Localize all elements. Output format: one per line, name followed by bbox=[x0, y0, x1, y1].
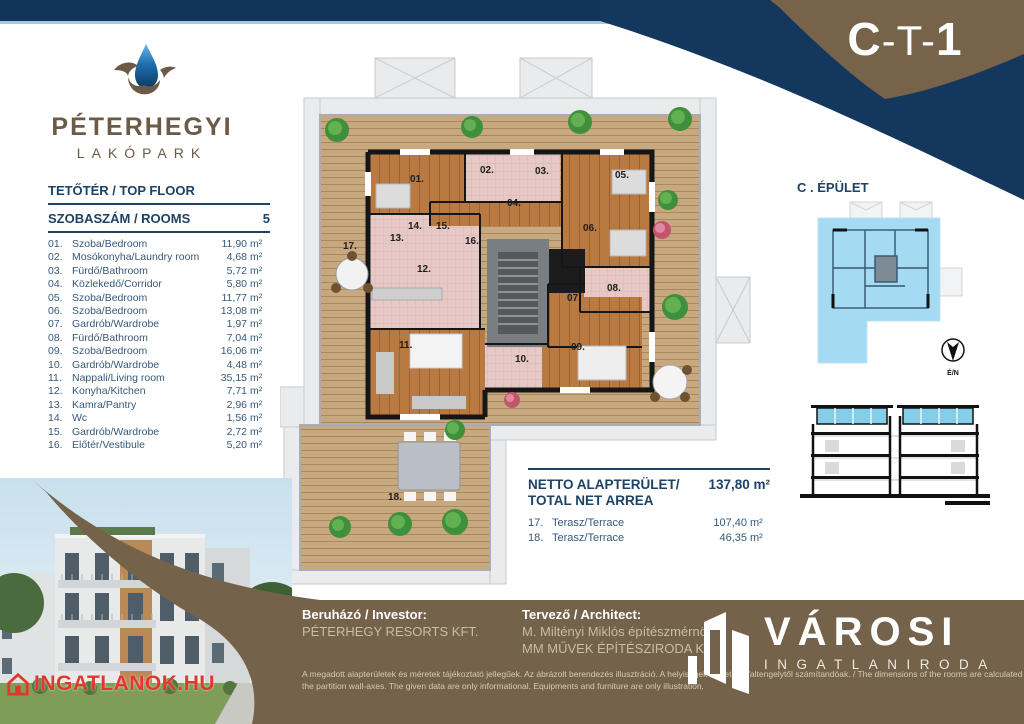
table-cell: 14. bbox=[48, 412, 72, 425]
table-row: 07.Gardrób/Wardrobe1,97m² bbox=[48, 318, 270, 331]
section-topfloor-right bbox=[903, 408, 973, 424]
table-row: 05.Szoba/Bedroom11,77m² bbox=[48, 292, 270, 305]
table-cell: 46,35 bbox=[701, 531, 747, 546]
table-row: 17.Terasz/Terrace107,40m² bbox=[528, 516, 770, 531]
table-row: 16.Előtér/Vestibule5,20m² bbox=[48, 439, 270, 452]
table-cell: Szoba/Bedroom bbox=[72, 238, 201, 251]
building-section bbox=[795, 396, 995, 512]
table-cell: 1,56 bbox=[201, 412, 247, 425]
table-row: 18.Terasz/Terrace46,35m² bbox=[528, 531, 770, 546]
table-cell: 10. bbox=[48, 359, 72, 372]
table-cell: m² bbox=[247, 426, 270, 439]
terrace-rows: 17.Terasz/Terrace107,40m²18.Terasz/Terra… bbox=[528, 516, 770, 545]
table-row: 09.Szoba/Bedroom16,06m² bbox=[48, 345, 270, 358]
investor-label: Beruházó / Investor: bbox=[302, 606, 479, 623]
city-buildings-icon bbox=[688, 610, 750, 696]
table-cell: 4,68 bbox=[201, 251, 247, 264]
logo-title: PÉTERHEGYI bbox=[42, 113, 242, 142]
unit-code-t: -T- bbox=[882, 17, 936, 64]
table-cell: 11,90 bbox=[201, 238, 247, 251]
unit-code: C-T-1 bbox=[820, 12, 990, 66]
table-cell: 08. bbox=[48, 332, 72, 345]
table-cell: 11,77 bbox=[201, 292, 247, 305]
table-cell: m² bbox=[247, 305, 270, 318]
table-cell: Terasz/Terrace bbox=[552, 531, 701, 546]
table-cell: 12. bbox=[48, 385, 72, 398]
developer-logo: PÉTERHEGYI LAKÓPARK bbox=[42, 42, 242, 161]
table-cell: Kamra/Pantry bbox=[72, 399, 201, 412]
table-cell: 06. bbox=[48, 305, 72, 318]
table-cell: m² bbox=[247, 345, 270, 358]
net-area-value: 137,80 m² bbox=[708, 477, 770, 509]
room-number-label: 02. bbox=[480, 165, 494, 176]
table-cell: Wc bbox=[72, 412, 201, 425]
table-cell: Közlekedő/Corridor bbox=[72, 278, 201, 291]
room-number-label: 14. bbox=[408, 221, 422, 232]
room-number-label: 18. bbox=[388, 492, 402, 503]
investor-block: Beruházó / Investor: PÉTERHEGY RESORTS K… bbox=[302, 606, 479, 640]
table-cell: Terasz/Terrace bbox=[552, 516, 701, 531]
rooms-header-label: SZOBASZÁM / ROOMS bbox=[48, 211, 190, 226]
table-cell: Szoba/Bedroom bbox=[72, 292, 201, 305]
table-row: 06.Szoba/Bedroom13,08m² bbox=[48, 305, 270, 318]
table-row: 11.Nappali/Living room35,15m² bbox=[48, 372, 270, 385]
room-number-label: 11. bbox=[399, 340, 413, 351]
table-cell: 11. bbox=[48, 372, 72, 385]
building-title: C . ÉPÜLET bbox=[797, 180, 869, 195]
table-cell: 13,08 bbox=[201, 305, 247, 318]
table-cell: 01. bbox=[48, 238, 72, 251]
table-cell: 16. bbox=[48, 439, 72, 452]
agency-logo: VÁROSI INGATLANIRODA bbox=[688, 610, 997, 696]
table-cell: 5,80 bbox=[201, 278, 247, 291]
room-number-label: 12. bbox=[417, 264, 431, 275]
room-number-label: 06. bbox=[583, 223, 597, 234]
table-row: 03.Fürdő/Bathroom5,72m² bbox=[48, 265, 270, 278]
disclaimer: A megadott alapterületek és méretek tájé… bbox=[302, 669, 1024, 692]
table-cell: m² bbox=[247, 292, 270, 305]
table-cell: m² bbox=[247, 332, 270, 345]
table-cell: 02. bbox=[48, 251, 72, 264]
table-cell: m² bbox=[247, 318, 270, 331]
building-key-map: É/N bbox=[795, 198, 1005, 394]
net-area-label-1: NETTO ALAPTERÜLET/ bbox=[528, 477, 708, 493]
table-cell: 04. bbox=[48, 278, 72, 291]
table-cell: m² bbox=[247, 412, 270, 425]
room-number-label: 09. bbox=[571, 342, 585, 353]
table-cell: m² bbox=[747, 516, 770, 531]
table-row: 04.Közlekedő/Corridor5,80m² bbox=[48, 278, 270, 291]
section-topfloor-left bbox=[817, 408, 887, 424]
architect-block: Tervező / Architect: M. Miltényi Miklós … bbox=[522, 606, 722, 657]
room-number-label: 01. bbox=[410, 174, 424, 185]
table-cell: 17. bbox=[528, 516, 552, 531]
table-row: 14.Wc1,56m² bbox=[48, 412, 270, 425]
table-cell: 07. bbox=[48, 318, 72, 331]
table-row: 10.Gardrób/Wardrobe4,48m² bbox=[48, 359, 270, 372]
table-cell: Fürdő/Bathroom bbox=[72, 332, 201, 345]
table-row: 08.Fürdő/Bathroom7,04m² bbox=[48, 332, 270, 345]
table-cell: 09. bbox=[48, 345, 72, 358]
watermark-text: INGATLANOK.HU bbox=[34, 672, 215, 696]
room-number-label: 03. bbox=[535, 166, 549, 177]
room-table: TETŐTÉR / TOP FLOOR SZOBASZÁM / ROOMS 5 … bbox=[48, 183, 270, 453]
disclaimer-line-2: the partition wall-axes. The given data … bbox=[302, 681, 1024, 693]
watermark: INGATLANOK.HU bbox=[6, 672, 215, 696]
room-number-label: 05. bbox=[615, 170, 629, 181]
net-area-label-2: TOTAL NET ARREA bbox=[528, 493, 708, 509]
table-cell: 7,04 bbox=[201, 332, 247, 345]
table-cell: 4,48 bbox=[201, 359, 247, 372]
table-row: 13.Kamra/Pantry2,96m² bbox=[48, 399, 270, 412]
table-cell: m² bbox=[247, 359, 270, 372]
table-cell: Fürdő/Bathroom bbox=[72, 265, 201, 278]
room-number-label: 07. bbox=[567, 293, 581, 304]
table-cell: 2,96 bbox=[201, 399, 247, 412]
brochure-page: C-T-1 PÉTERHEGYI LAKÓPARK TETŐTÉR / TOP … bbox=[0, 0, 1024, 724]
room-table-header: SZOBASZÁM / ROOMS 5 bbox=[48, 205, 270, 233]
room-number-label: 10. bbox=[515, 354, 529, 365]
table-cell: m² bbox=[247, 278, 270, 291]
table-cell: Szoba/Bedroom bbox=[72, 305, 201, 318]
room-number-label: 17. bbox=[343, 241, 357, 252]
table-cell: 05. bbox=[48, 292, 72, 305]
table-cell: 7,71 bbox=[201, 385, 247, 398]
table-cell: 13. bbox=[48, 399, 72, 412]
stairwell bbox=[498, 252, 538, 334]
room-table-title: TETŐTÉR / TOP FLOOR bbox=[48, 183, 270, 205]
top-accent-line bbox=[0, 21, 700, 24]
room-number-label: 16. bbox=[465, 236, 479, 247]
logo-subtitle: LAKÓPARK bbox=[42, 145, 242, 161]
table-cell: m² bbox=[247, 439, 270, 452]
table-row: 12.Konyha/Kitchen7,71m² bbox=[48, 385, 270, 398]
room-number-label: 04. bbox=[507, 198, 521, 209]
table-cell: 18. bbox=[528, 531, 552, 546]
table-cell: Szoba/Bedroom bbox=[72, 345, 201, 358]
table-cell: 35,15 bbox=[201, 372, 247, 385]
architect-label: Tervező / Architect: bbox=[522, 606, 722, 623]
rooms-count: 5 bbox=[263, 211, 270, 226]
room-table-rows: 01.Szoba/Bedroom11,90m²02.Mosókonyha/Lau… bbox=[48, 238, 270, 453]
table-cell: m² bbox=[247, 265, 270, 278]
house-icon bbox=[6, 672, 30, 696]
table-cell: m² bbox=[247, 238, 270, 251]
table-cell: Gardrób/Wardrobe bbox=[72, 318, 201, 331]
unit-code-n: 1 bbox=[936, 13, 963, 65]
net-area-header: NETTO ALAPTERÜLET/ TOTAL NET ARREA 137,8… bbox=[528, 468, 770, 509]
table-cell: Gardrób/Wardrobe bbox=[72, 359, 201, 372]
bird-drop-icon bbox=[106, 42, 178, 104]
table-cell: Nappali/Living room bbox=[72, 372, 201, 385]
table-row: 15.Gardrób/Wardrobe2,72m² bbox=[48, 426, 270, 439]
investor-name: PÉTERHEGY RESORTS KFT. bbox=[302, 623, 479, 640]
table-cell: Mosókonyha/Laundry room bbox=[72, 251, 201, 264]
room-number-label: 08. bbox=[607, 283, 621, 294]
disclaimer-line-1: A megadott alapterületek és méretek tájé… bbox=[302, 669, 1024, 681]
table-cell: 2,72 bbox=[201, 426, 247, 439]
table-row: 01.Szoba/Bedroom11,90m² bbox=[48, 238, 270, 251]
table-cell: 16,06 bbox=[201, 345, 247, 358]
table-cell: 5,20 bbox=[201, 439, 247, 452]
table-cell: 1,97 bbox=[201, 318, 247, 331]
table-cell: m² bbox=[747, 531, 770, 546]
table-cell: m² bbox=[247, 399, 270, 412]
table-row: 02.Mosókonyha/Laundry room4,68m² bbox=[48, 251, 270, 264]
unit-code-c: C bbox=[847, 13, 881, 65]
table-cell: Konyha/Kitchen bbox=[72, 385, 201, 398]
table-cell: Gardrób/Wardrobe bbox=[72, 426, 201, 439]
room-number-label: 13. bbox=[390, 233, 404, 244]
brand-name: VÁROSI bbox=[764, 610, 997, 654]
table-cell: 5,72 bbox=[201, 265, 247, 278]
table-cell: Előtér/Vestibule bbox=[72, 439, 201, 452]
table-cell: m² bbox=[247, 251, 270, 264]
compass: É/N bbox=[942, 339, 964, 377]
net-area-block: NETTO ALAPTERÜLET/ TOTAL NET ARREA 137,8… bbox=[528, 468, 770, 545]
room-number-label: 15. bbox=[436, 221, 450, 232]
architect-name: M. Miltényi Miklós építészmérnök bbox=[522, 623, 722, 640]
table-cell: 03. bbox=[48, 265, 72, 278]
table-cell: m² bbox=[247, 372, 270, 385]
table-cell: 107,40 bbox=[701, 516, 747, 531]
table-cell: m² bbox=[247, 385, 270, 398]
table-cell: 15. bbox=[48, 426, 72, 439]
map-footprint bbox=[818, 218, 940, 363]
compass-label: É/N bbox=[947, 368, 959, 377]
brand-subtitle: INGATLANIRODA bbox=[764, 657, 997, 672]
architect-company: MM MŰVEK ÉPÍTÉSZIRODA KFT. bbox=[522, 640, 722, 657]
